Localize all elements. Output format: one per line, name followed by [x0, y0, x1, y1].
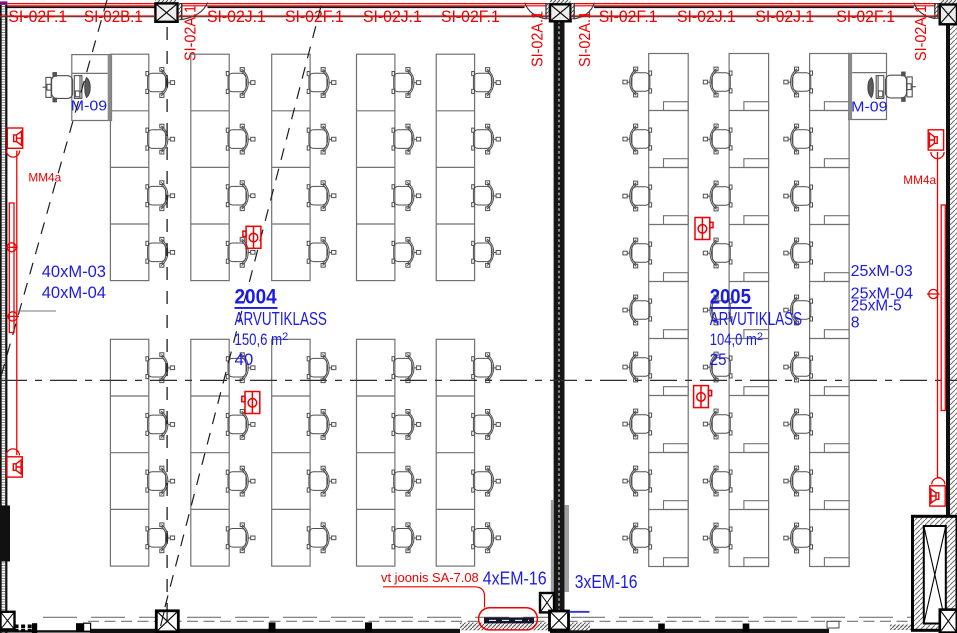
svg-text:SI-02J.1: SI-02J.1: [755, 8, 814, 26]
svg-text:2004: 2004: [235, 284, 277, 308]
svg-text:SI-02F.1: SI-02F.1: [8, 8, 67, 26]
svg-text:SI-02F.1: SI-02F.1: [599, 8, 658, 26]
svg-text:SI-02F.1: SI-02F.1: [285, 8, 344, 26]
svg-text:ARVUTIKLASS: ARVUTIKLASS: [710, 308, 802, 329]
svg-text:150,6 m2: 150,6 m2: [235, 330, 289, 349]
svg-text:40xM-04: 40xM-04: [42, 283, 106, 302]
svg-text:4xEM-16: 4xEM-16: [483, 569, 547, 589]
svg-text:SI-02F.1: SI-02F.1: [836, 8, 895, 26]
svg-text:SI-02B.1: SI-02B.1: [84, 8, 143, 26]
svg-text:SI-02J.1: SI-02J.1: [677, 8, 736, 26]
svg-text:SI-02A.1: SI-02A.1: [530, 11, 547, 67]
svg-text:ARVUTIKLASS: ARVUTIKLASS: [235, 308, 327, 329]
svg-text:104,0 m2: 104,0 m2: [710, 330, 763, 349]
svg-text:25xM-03: 25xM-03: [851, 263, 913, 280]
svg-text:MM4a: MM4a: [28, 170, 61, 184]
svg-text:MM4a: MM4a: [903, 173, 936, 187]
svg-text:M-09: M-09: [851, 98, 887, 115]
svg-text:8: 8: [851, 315, 860, 332]
svg-text:SI-02J.1: SI-02J.1: [363, 8, 422, 26]
svg-text:M-09: M-09: [71, 98, 107, 115]
svg-text:SI-02A.1: SI-02A.1: [577, 11, 594, 67]
svg-text:SI-02F.1: SI-02F.1: [441, 8, 500, 26]
svg-text:25xM-5: 25xM-5: [851, 298, 902, 315]
svg-text:40: 40: [235, 350, 254, 369]
svg-text:25: 25: [710, 350, 727, 369]
svg-text:3xEM-16: 3xEM-16: [575, 572, 638, 592]
svg-text:2005: 2005: [710, 284, 751, 308]
svg-text:vt joonis SA-7.08: vt joonis SA-7.08: [381, 570, 479, 585]
svg-text:SI-02A.1: SI-02A.1: [182, 5, 199, 61]
svg-text:SI-02J.1: SI-02J.1: [207, 8, 266, 26]
svg-text:SI-02A.1: SI-02A.1: [913, 5, 930, 61]
svg-text:40xM-03: 40xM-03: [42, 262, 106, 281]
